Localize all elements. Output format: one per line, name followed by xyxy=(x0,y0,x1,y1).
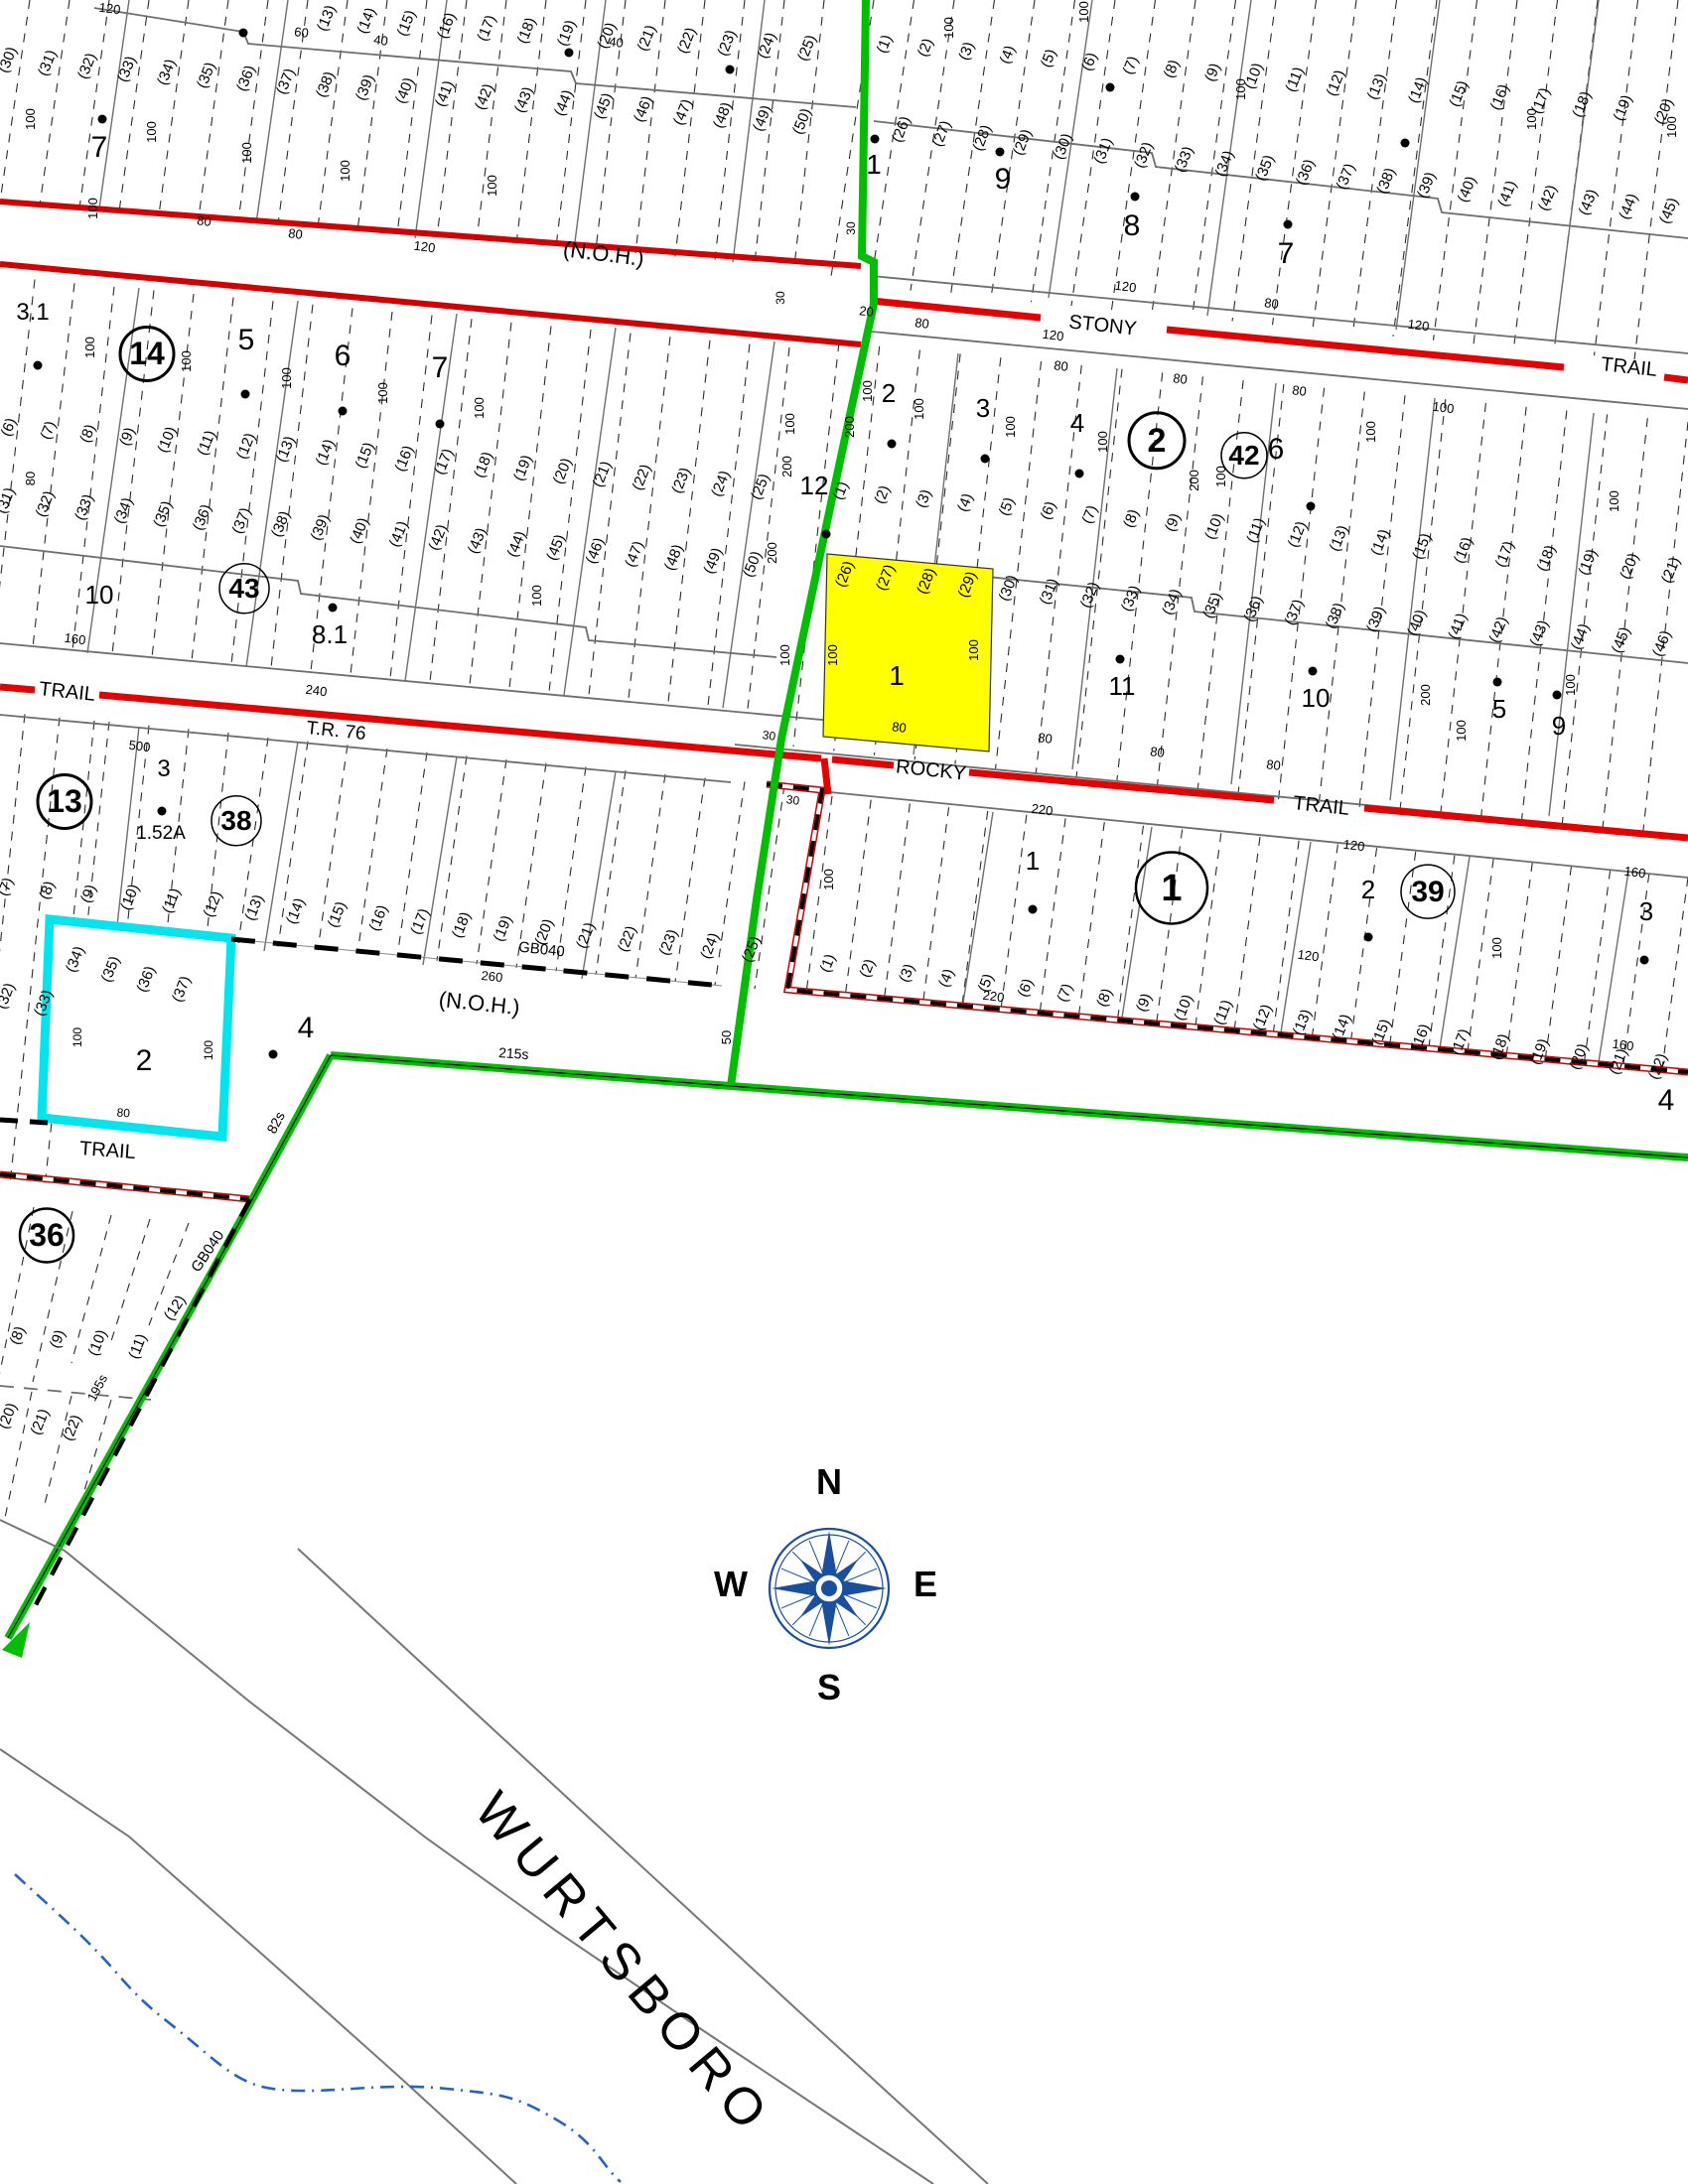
svg-text:1.52A: 1.52A xyxy=(136,823,186,844)
svg-text:(4): (4) xyxy=(996,43,1019,66)
svg-text:30: 30 xyxy=(844,221,858,235)
svg-text:(5): (5) xyxy=(996,495,1019,518)
svg-text:3: 3 xyxy=(1639,896,1653,926)
svg-text:(39): (39) xyxy=(1363,604,1389,634)
svg-text:(16): (16) xyxy=(1487,81,1513,112)
svg-text:(1): (1) xyxy=(874,33,897,56)
svg-text:100: 100 xyxy=(1432,399,1455,417)
svg-text:100: 100 xyxy=(821,869,836,890)
svg-text:(18): (18) xyxy=(471,450,496,480)
svg-text:200: 200 xyxy=(842,416,857,438)
svg-text:(16): (16) xyxy=(434,10,460,41)
svg-text:(19): (19) xyxy=(491,913,516,944)
svg-text:(32): (32) xyxy=(33,488,59,519)
svg-text:100: 100 xyxy=(1233,78,1248,100)
svg-text:(50): (50) xyxy=(789,106,815,137)
svg-text:80: 80 xyxy=(1172,370,1188,387)
svg-text:80: 80 xyxy=(116,1106,131,1121)
svg-text:T.R. 76: T.R. 76 xyxy=(306,718,367,745)
svg-text:(35): (35) xyxy=(150,498,176,529)
svg-text:(24): (24) xyxy=(708,469,734,499)
svg-text:43: 43 xyxy=(228,573,259,604)
svg-text:80: 80 xyxy=(23,472,38,485)
watermark-text: WURTSBORO xyxy=(464,1782,784,2148)
svg-text:(17): (17) xyxy=(474,13,499,44)
svg-text:100: 100 xyxy=(472,397,487,419)
svg-text:(35): (35) xyxy=(194,60,219,90)
svg-text:100: 100 xyxy=(1003,416,1018,438)
svg-text:9: 9 xyxy=(995,163,1012,196)
svg-text:80: 80 xyxy=(1149,744,1165,760)
svg-text:4: 4 xyxy=(298,1012,315,1044)
svg-text:40: 40 xyxy=(372,32,388,49)
svg-text:38: 38 xyxy=(220,805,251,836)
svg-text:(33): (33) xyxy=(114,54,140,84)
svg-text:100: 100 xyxy=(966,639,981,661)
svg-text:(12): (12) xyxy=(1323,68,1348,98)
svg-text:(23): (23) xyxy=(714,28,740,59)
svg-text:(5): (5) xyxy=(1038,47,1060,69)
svg-text:(39): (39) xyxy=(308,512,334,543)
svg-text:(36): (36) xyxy=(1240,594,1266,624)
svg-text:8.1: 8.1 xyxy=(312,619,348,649)
svg-text:(13): (13) xyxy=(1327,523,1352,554)
svg-text:(43): (43) xyxy=(1576,187,1602,217)
svg-text:(36): (36) xyxy=(1293,157,1319,188)
svg-text:GB040: GB040 xyxy=(517,939,565,961)
svg-text:200: 200 xyxy=(1187,470,1201,491)
svg-text:100: 100 xyxy=(144,121,159,143)
svg-text:(9): (9) xyxy=(77,883,100,905)
svg-text:4: 4 xyxy=(1658,1084,1675,1117)
svg-text:(46): (46) xyxy=(1649,628,1675,659)
svg-text:(37): (37) xyxy=(228,505,254,536)
svg-text:100: 100 xyxy=(375,382,390,404)
svg-text:80: 80 xyxy=(1263,295,1279,312)
svg-text:200: 200 xyxy=(1418,684,1433,706)
svg-text:4: 4 xyxy=(1070,408,1084,438)
svg-text:(15): (15) xyxy=(394,8,420,39)
svg-text:2: 2 xyxy=(882,378,896,408)
svg-text:(45): (45) xyxy=(591,90,617,121)
svg-text:(48): (48) xyxy=(710,100,736,131)
svg-text:3.1: 3.1 xyxy=(16,299,49,326)
svg-text:100: 100 xyxy=(782,413,797,435)
svg-text:14: 14 xyxy=(129,336,165,371)
svg-text:(43): (43) xyxy=(465,525,491,556)
svg-text:(6): (6) xyxy=(1038,499,1060,522)
compass-rose: NESW xyxy=(714,1461,937,1707)
svg-text:(45): (45) xyxy=(1656,196,1682,226)
svg-text:80: 80 xyxy=(1291,382,1307,399)
svg-text:1: 1 xyxy=(1161,868,1182,909)
svg-text:2: 2 xyxy=(1361,875,1375,904)
svg-text:(7): (7) xyxy=(1119,54,1142,76)
svg-text:(36): (36) xyxy=(233,63,259,93)
svg-text:100: 100 xyxy=(485,175,499,197)
svg-text:2: 2 xyxy=(136,1044,153,1077)
svg-text:(13): (13) xyxy=(241,892,267,923)
svg-text:(49): (49) xyxy=(700,545,726,576)
svg-text:(24): (24) xyxy=(755,30,780,61)
svg-text:(13): (13) xyxy=(1290,1007,1316,1037)
svg-text:(32): (32) xyxy=(1077,580,1103,611)
svg-text:120: 120 xyxy=(1297,947,1320,965)
svg-text:(25): (25) xyxy=(748,472,774,502)
svg-text:(43): (43) xyxy=(511,84,537,115)
svg-text:(19): (19) xyxy=(510,453,536,483)
svg-text:(22): (22) xyxy=(1645,1051,1671,1082)
svg-text:(41): (41) xyxy=(1445,611,1471,641)
svg-text:100: 100 xyxy=(1454,720,1469,742)
svg-text:(3): (3) xyxy=(913,487,935,510)
svg-text:120: 120 xyxy=(1407,317,1430,335)
svg-text:100: 100 xyxy=(912,398,926,420)
svg-text:100: 100 xyxy=(860,380,875,402)
svg-text:(3): (3) xyxy=(955,40,978,63)
svg-text:(34): (34) xyxy=(111,495,137,526)
svg-text:(18): (18) xyxy=(1534,543,1560,574)
svg-text:(37): (37) xyxy=(273,66,299,96)
svg-text:100: 100 xyxy=(82,337,97,358)
svg-text:11: 11 xyxy=(1109,671,1136,701)
svg-text:(13): (13) xyxy=(1364,71,1390,102)
svg-text:(8): (8) xyxy=(1120,507,1143,530)
svg-text:(10): (10) xyxy=(85,1327,111,1358)
svg-text:(20): (20) xyxy=(1617,551,1642,582)
svg-text:(17): (17) xyxy=(1492,539,1518,570)
svg-text:(10): (10) xyxy=(1201,511,1227,542)
svg-text:(31): (31) xyxy=(1037,576,1062,607)
svg-text:260: 260 xyxy=(481,968,503,985)
svg-text:(14): (14) xyxy=(283,895,309,926)
svg-text:(6): (6) xyxy=(1015,976,1038,999)
svg-text:(32): (32) xyxy=(1131,140,1157,171)
svg-text:(35): (35) xyxy=(1252,153,1278,184)
svg-text:(8): (8) xyxy=(1093,986,1116,1009)
svg-text:(3): (3) xyxy=(896,962,918,985)
tax-map-viewport[interactable]: (13)(14)(15)(16)(17)(18)(19)(20)(21)(22)… xyxy=(0,0,1688,2184)
svg-text:(20): (20) xyxy=(550,456,576,486)
svg-text:100: 100 xyxy=(1489,937,1504,959)
svg-text:(1): (1) xyxy=(817,952,840,975)
svg-text:(21): (21) xyxy=(573,920,599,951)
svg-text:2: 2 xyxy=(1148,422,1167,460)
svg-text:(26): (26) xyxy=(889,114,914,145)
svg-text:(38): (38) xyxy=(268,508,294,539)
svg-text:(22): (22) xyxy=(674,25,700,56)
boundary-lines-layer xyxy=(0,0,1688,1658)
svg-text:(11): (11) xyxy=(159,886,184,915)
svg-text:(20): (20) xyxy=(1566,1041,1592,1072)
svg-text:TRAIL: TRAIL xyxy=(38,678,96,706)
svg-text:30: 30 xyxy=(785,792,800,808)
svg-text:120: 120 xyxy=(1342,837,1365,855)
svg-text:(44): (44) xyxy=(503,529,529,560)
svg-text:WURTSBORO: WURTSBORO xyxy=(464,1782,784,2148)
svg-text:100: 100 xyxy=(1563,674,1578,696)
svg-text:100: 100 xyxy=(279,367,294,389)
svg-text:(23): (23) xyxy=(668,465,694,495)
svg-text:(44): (44) xyxy=(1616,191,1641,221)
svg-text:(8): (8) xyxy=(36,879,59,901)
svg-text:100: 100 xyxy=(23,108,38,130)
svg-text:7: 7 xyxy=(91,131,108,164)
svg-text:100: 100 xyxy=(1213,466,1228,487)
svg-text:(34): (34) xyxy=(154,57,180,87)
svg-text:(44): (44) xyxy=(1568,621,1594,652)
svg-text:100: 100 xyxy=(1524,108,1539,130)
svg-text:(17): (17) xyxy=(407,906,433,937)
svg-text:120: 120 xyxy=(1042,327,1064,344)
svg-text:(21): (21) xyxy=(590,459,616,489)
svg-text:(34): (34) xyxy=(1159,587,1185,617)
svg-text:42: 42 xyxy=(1228,440,1259,471)
svg-text:(21): (21) xyxy=(1658,555,1684,586)
svg-text:30: 30 xyxy=(762,728,776,744)
svg-text:(45): (45) xyxy=(1609,624,1634,655)
svg-text:100: 100 xyxy=(1076,1,1091,23)
svg-text:7: 7 xyxy=(1278,237,1295,270)
svg-text:80: 80 xyxy=(1053,357,1068,374)
svg-text:(17): (17) xyxy=(431,446,457,477)
svg-text:120: 120 xyxy=(1114,278,1137,296)
svg-text:(7): (7) xyxy=(1054,981,1076,1004)
svg-text:(39): (39) xyxy=(352,72,378,103)
svg-text:(9): (9) xyxy=(1133,991,1156,1014)
svg-text:30: 30 xyxy=(774,291,787,305)
svg-text:100: 100 xyxy=(338,160,352,182)
svg-text:100: 100 xyxy=(202,1040,215,1060)
svg-text:5: 5 xyxy=(1492,694,1506,724)
svg-text:80: 80 xyxy=(1037,730,1053,747)
svg-text:13: 13 xyxy=(47,783,82,819)
svg-text:TRAIL: TRAIL xyxy=(1292,792,1350,820)
svg-text:500: 500 xyxy=(128,738,151,755)
svg-text:120: 120 xyxy=(98,0,121,17)
svg-text:40: 40 xyxy=(608,34,624,51)
svg-text:(18): (18) xyxy=(514,15,540,46)
svg-text:(38): (38) xyxy=(1373,166,1399,197)
svg-text:S: S xyxy=(817,1667,841,1707)
svg-text:(16): (16) xyxy=(391,443,417,474)
svg-text:(9): (9) xyxy=(1201,61,1224,83)
svg-text:(15): (15) xyxy=(325,899,351,930)
svg-text:(31): (31) xyxy=(35,48,61,78)
svg-text:(48): (48) xyxy=(661,542,687,573)
svg-text:(22): (22) xyxy=(60,1413,85,1443)
svg-text:(7): (7) xyxy=(0,876,17,898)
svg-text:ROCKY: ROCKY xyxy=(895,755,967,784)
svg-text:120: 120 xyxy=(413,238,436,256)
svg-text:(21): (21) xyxy=(27,1407,53,1437)
svg-text:82s: 82s xyxy=(263,1109,288,1136)
svg-text:6: 6 xyxy=(335,340,352,372)
svg-text:(33): (33) xyxy=(1118,583,1144,614)
svg-text:(N.O.H.): (N.O.H.) xyxy=(562,236,645,271)
svg-text:1: 1 xyxy=(889,660,905,691)
svg-text:100: 100 xyxy=(1363,421,1378,443)
svg-text:220: 220 xyxy=(1031,801,1054,819)
svg-text:39: 39 xyxy=(1411,876,1444,908)
svg-text:(21): (21) xyxy=(634,23,660,54)
svg-text:(11): (11) xyxy=(1210,998,1235,1027)
svg-text:(13): (13) xyxy=(314,3,340,34)
svg-text:(2): (2) xyxy=(871,483,894,506)
svg-text:160: 160 xyxy=(1623,864,1646,882)
svg-text:80: 80 xyxy=(914,315,929,332)
svg-text:9: 9 xyxy=(1552,711,1566,741)
svg-text:(50): (50) xyxy=(740,549,766,580)
svg-text:(23): (23) xyxy=(656,927,682,958)
svg-text:80: 80 xyxy=(287,225,303,242)
svg-text:(4): (4) xyxy=(954,491,977,514)
svg-text:(22): (22) xyxy=(615,923,640,954)
svg-text:(16): (16) xyxy=(1451,535,1477,566)
svg-text:(40): (40) xyxy=(1404,608,1430,638)
svg-text:195s: 195s xyxy=(84,1371,111,1403)
svg-text:(32): (32) xyxy=(74,51,100,81)
svg-text:(12): (12) xyxy=(1250,1002,1276,1032)
svg-text:(19): (19) xyxy=(1611,92,1636,123)
svg-text:(22): (22) xyxy=(629,462,654,492)
svg-text:(2): (2) xyxy=(856,957,879,980)
svg-text:(42): (42) xyxy=(425,522,451,553)
svg-text:60: 60 xyxy=(293,24,309,41)
svg-text:(18): (18) xyxy=(449,909,475,940)
svg-text:160: 160 xyxy=(1612,1036,1634,1054)
svg-text:(30): (30) xyxy=(0,45,21,75)
svg-text:(40): (40) xyxy=(1455,174,1480,205)
svg-text:12: 12 xyxy=(800,471,829,500)
svg-text:N: N xyxy=(816,1461,842,1502)
svg-text:W: W xyxy=(714,1564,748,1604)
svg-text:(33): (33) xyxy=(71,491,97,522)
svg-text:(27): (27) xyxy=(929,118,955,149)
svg-text:100: 100 xyxy=(1607,490,1621,512)
svg-text:8: 8 xyxy=(1124,209,1141,242)
svg-text:80: 80 xyxy=(1265,756,1281,773)
svg-text:(42): (42) xyxy=(1485,614,1511,645)
parcel-map: (13)(14)(15)(16)(17)(18)(19)(20)(21)(22)… xyxy=(0,0,1688,2184)
svg-text:(31): (31) xyxy=(1090,135,1116,166)
svg-text:(19): (19) xyxy=(554,18,580,49)
svg-text:(18): (18) xyxy=(1569,89,1595,120)
svg-text:(47): (47) xyxy=(670,96,696,127)
svg-text:(25): (25) xyxy=(739,934,765,965)
svg-text:(8): (8) xyxy=(1161,58,1184,80)
svg-text:(20): (20) xyxy=(0,1401,21,1432)
svg-text:(45): (45) xyxy=(543,532,569,563)
svg-text:10: 10 xyxy=(85,580,114,610)
svg-text:(15): (15) xyxy=(352,440,378,471)
svg-text:(49): (49) xyxy=(750,103,775,134)
svg-text:200: 200 xyxy=(779,456,794,478)
svg-text:80: 80 xyxy=(196,212,211,229)
svg-text:TRAIL: TRAIL xyxy=(78,1138,136,1163)
svg-text:80: 80 xyxy=(891,719,907,736)
svg-text:(46): (46) xyxy=(631,93,656,124)
svg-text:7: 7 xyxy=(432,351,449,384)
svg-text:100: 100 xyxy=(941,17,956,39)
svg-text:(34): (34) xyxy=(1211,148,1237,179)
svg-text:(9): (9) xyxy=(1162,511,1185,534)
svg-text:(16): (16) xyxy=(365,902,391,933)
svg-text:(9): (9) xyxy=(47,1327,70,1350)
svg-text:100: 100 xyxy=(1095,431,1110,453)
svg-text:(25): (25) xyxy=(794,33,820,64)
svg-text:(42): (42) xyxy=(1535,183,1561,213)
svg-text:(8): (8) xyxy=(76,422,99,445)
svg-text:200: 200 xyxy=(765,542,779,564)
svg-text:(32): (32) xyxy=(0,981,19,1012)
svg-text:5: 5 xyxy=(238,324,255,356)
svg-text:1: 1 xyxy=(866,149,882,180)
svg-text:215s: 215s xyxy=(498,1044,529,1062)
svg-text:(41): (41) xyxy=(1494,178,1520,208)
svg-text:100: 100 xyxy=(1664,116,1679,138)
svg-text:(10): (10) xyxy=(1171,992,1196,1023)
svg-text:TRAIL: TRAIL xyxy=(1600,353,1658,381)
svg-text:220: 220 xyxy=(982,988,1005,1006)
svg-text:(47): (47) xyxy=(622,539,647,570)
survey-dots-layer xyxy=(34,29,1649,1059)
svg-text:(8): (8) xyxy=(7,1324,30,1347)
svg-text:36: 36 xyxy=(29,1217,65,1253)
svg-text:(39): (39) xyxy=(1414,170,1440,201)
svg-text:(15): (15) xyxy=(1446,78,1472,109)
svg-text:100: 100 xyxy=(777,644,792,666)
svg-text:20: 20 xyxy=(858,303,874,320)
svg-text:100: 100 xyxy=(239,142,254,164)
svg-text:(29): (29) xyxy=(1010,127,1036,158)
svg-text:STONY: STONY xyxy=(1067,312,1137,341)
svg-text:6: 6 xyxy=(1268,433,1285,466)
svg-text:(38): (38) xyxy=(313,69,339,100)
svg-text:100: 100 xyxy=(85,198,100,219)
svg-text:100: 100 xyxy=(179,350,194,372)
svg-text:100: 100 xyxy=(825,644,840,666)
svg-text:(36): (36) xyxy=(190,502,215,533)
svg-text:1: 1 xyxy=(1026,846,1040,876)
svg-text:240: 240 xyxy=(305,682,328,700)
svg-text:10: 10 xyxy=(1302,683,1331,713)
svg-text:(12): (12) xyxy=(201,888,226,919)
svg-text:(11): (11) xyxy=(1243,515,1268,545)
svg-text:(11): (11) xyxy=(125,1331,150,1361)
svg-text:100: 100 xyxy=(70,1027,84,1047)
svg-text:100: 100 xyxy=(529,585,544,607)
svg-text:3: 3 xyxy=(976,393,990,423)
svg-text:(35): (35) xyxy=(1199,590,1225,620)
svg-text:(31): (31) xyxy=(0,485,19,516)
svg-text:(37): (37) xyxy=(1333,161,1358,192)
svg-text:(4): (4) xyxy=(935,966,958,989)
svg-text:50: 50 xyxy=(719,1030,734,1044)
svg-text:(7): (7) xyxy=(1078,503,1101,526)
svg-text:(14): (14) xyxy=(1367,527,1393,558)
svg-text:(44): (44) xyxy=(551,87,577,118)
svg-text:(2): (2) xyxy=(914,36,937,59)
svg-text:(N.O.H.): (N.O.H.) xyxy=(438,987,521,1020)
svg-text:3: 3 xyxy=(157,755,170,782)
svg-text:160: 160 xyxy=(64,630,86,648)
svg-text:E: E xyxy=(914,1564,937,1604)
svg-text:(28): (28) xyxy=(969,122,995,153)
svg-text:(43): (43) xyxy=(1526,617,1552,648)
roads-layer xyxy=(0,202,1688,838)
